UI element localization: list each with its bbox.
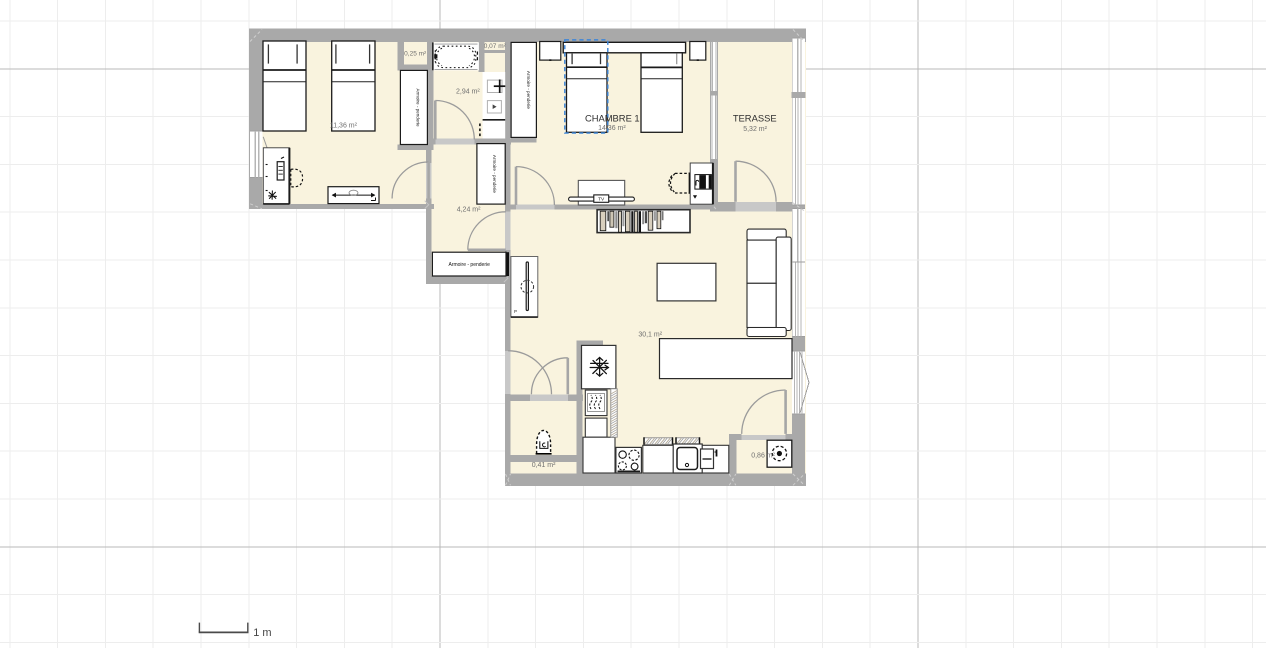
svg-text:1 m: 1 m xyxy=(253,627,271,639)
svg-text:2,94 m²: 2,94 m² xyxy=(456,89,480,96)
svg-text:0,86 m²: 0,86 m² xyxy=(751,453,775,460)
svg-text:P: P xyxy=(514,309,517,314)
svg-text:0,25 m²: 0,25 m² xyxy=(404,51,427,58)
svg-text:TERASSE: TERASSE xyxy=(733,113,777,124)
svg-text:0,41 m²: 0,41 m² xyxy=(532,462,556,469)
svg-text:0,07 m²: 0,07 m² xyxy=(484,43,507,50)
svg-text:4,24 m²: 4,24 m² xyxy=(457,206,481,213)
svg-text:11,36 m²: 11,36 m² xyxy=(330,122,358,129)
svg-text:CHAMBRE 1: CHAMBRE 1 xyxy=(585,112,640,123)
svg-text:Armoire - penderie: Armoire - penderie xyxy=(492,155,497,193)
svg-text:Armoire - penderie: Armoire - penderie xyxy=(526,71,531,109)
svg-text:5,32 m²: 5,32 m² xyxy=(743,126,767,133)
svg-text:14,36 m²: 14,36 m² xyxy=(598,125,626,132)
svg-text:TV: TV xyxy=(598,197,605,203)
svg-text:Armoire - penderie: Armoire - penderie xyxy=(448,262,490,268)
svg-text:30,1 m²: 30,1 m² xyxy=(638,331,662,338)
svg-text:Armoire - penderie: Armoire - penderie xyxy=(416,88,421,126)
